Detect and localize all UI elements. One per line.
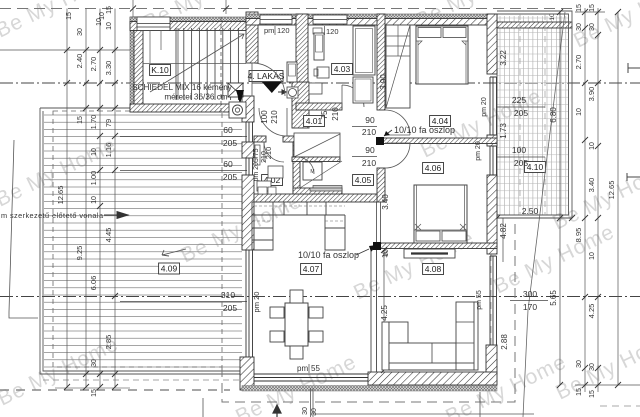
svg-text:5.65: 5.65 bbox=[549, 290, 558, 306]
svg-text:pm 20: pm 20 bbox=[481, 97, 488, 117]
svg-text:1.73: 1.73 bbox=[499, 123, 508, 139]
svg-text:pm 20: pm 20 bbox=[252, 292, 261, 313]
svg-text:30: 30 bbox=[576, 360, 583, 368]
svg-text:2.40: 2.40 bbox=[75, 54, 84, 69]
svg-text:30: 30 bbox=[589, 363, 596, 371]
svg-text:10: 10 bbox=[99, 12, 106, 20]
svg-text:30: 30 bbox=[91, 359, 98, 367]
svg-text:K.10: K.10 bbox=[151, 65, 169, 75]
svg-text:100: 100 bbox=[512, 145, 526, 155]
svg-text:210: 210 bbox=[261, 151, 268, 163]
svg-text:3.90: 3.90 bbox=[379, 74, 388, 90]
svg-text:2.85: 2.85 bbox=[104, 335, 113, 350]
svg-text:205: 205 bbox=[514, 108, 528, 118]
svg-text:10: 10 bbox=[383, 249, 390, 257]
svg-text:4.06: 4.06 bbox=[425, 163, 442, 173]
svg-text:205: 205 bbox=[514, 158, 528, 168]
svg-text:pm: pm bbox=[264, 26, 274, 35]
svg-text:pm 55: pm 55 bbox=[476, 290, 483, 310]
svg-text:205: 205 bbox=[223, 138, 237, 148]
svg-text:10: 10 bbox=[576, 108, 583, 116]
svg-text:10: 10 bbox=[589, 142, 596, 150]
svg-text:4.45: 4.45 bbox=[104, 228, 113, 243]
svg-text:90: 90 bbox=[365, 115, 375, 125]
svg-text:15: 15 bbox=[576, 4, 583, 12]
svg-text:300: 300 bbox=[523, 289, 537, 299]
svg-text:2.70: 2.70 bbox=[574, 55, 583, 70]
svg-text:210: 210 bbox=[362, 127, 376, 137]
svg-text:15: 15 bbox=[66, 12, 73, 20]
svg-text:1.16: 1.16 bbox=[104, 143, 113, 158]
svg-text:60: 60 bbox=[223, 159, 233, 169]
svg-text:205: 205 bbox=[223, 303, 237, 313]
svg-text:15: 15 bbox=[589, 390, 596, 398]
svg-text:10: 10 bbox=[91, 196, 98, 204]
svg-text:3.40: 3.40 bbox=[587, 178, 596, 193]
svg-text:3.22: 3.22 bbox=[499, 50, 508, 66]
svg-text:1.00: 1.00 bbox=[89, 171, 98, 186]
svg-text:SCHIEDEL MIX 16 kémény: SCHIEDEL MIX 16 kémény bbox=[132, 83, 233, 92]
svg-text:4.04: 4.04 bbox=[432, 116, 449, 126]
svg-text:9.25: 9.25 bbox=[75, 246, 84, 261]
svg-text:225: 225 bbox=[512, 95, 526, 105]
svg-text:170: 170 bbox=[523, 302, 537, 312]
svg-text:4.08: 4.08 bbox=[425, 264, 442, 274]
svg-text:méretei 36/36 cm: méretei 36/36 cm bbox=[164, 93, 227, 102]
svg-text:15: 15 bbox=[77, 116, 84, 124]
svg-text:55: 55 bbox=[311, 364, 320, 373]
svg-text:30: 30 bbox=[311, 408, 318, 416]
svg-text:8.95: 8.95 bbox=[574, 228, 583, 243]
svg-text:3.30: 3.30 bbox=[104, 61, 113, 76]
svg-text:10: 10 bbox=[589, 252, 596, 260]
svg-text:30: 30 bbox=[576, 23, 583, 31]
svg-text:15: 15 bbox=[576, 388, 583, 396]
svg-text:4.07: 4.07 bbox=[303, 264, 320, 274]
svg-text:4.10: 4.10 bbox=[527, 162, 544, 172]
svg-text:30: 30 bbox=[77, 28, 84, 36]
svg-text:120: 120 bbox=[326, 27, 339, 36]
svg-text:310: 310 bbox=[221, 290, 235, 300]
svg-text:30: 30 bbox=[589, 23, 596, 31]
svg-text:3.90: 3.90 bbox=[587, 87, 596, 102]
svg-text:4.82: 4.82 bbox=[499, 223, 508, 239]
svg-text:6.06: 6.06 bbox=[89, 276, 98, 291]
svg-text:12.65: 12.65 bbox=[56, 186, 65, 205]
svg-text:m szerkezetű előtető vonala: m szerkezetű előtető vonala bbox=[1, 211, 104, 220]
svg-text:12.65: 12.65 bbox=[607, 181, 616, 200]
svg-text:30: 30 bbox=[302, 407, 309, 415]
svg-text:2.88: 2.88 bbox=[500, 334, 509, 350]
svg-text:210: 210 bbox=[331, 107, 340, 121]
svg-text:210: 210 bbox=[270, 110, 279, 124]
svg-text:6.80: 6.80 bbox=[549, 107, 558, 123]
svg-text:4.25: 4.25 bbox=[587, 304, 596, 319]
svg-text:2.70: 2.70 bbox=[89, 57, 98, 72]
svg-text:75: 75 bbox=[320, 110, 329, 119]
svg-text:15: 15 bbox=[589, 4, 596, 12]
svg-text:3.40: 3.40 bbox=[381, 194, 390, 210]
svg-text:79: 79 bbox=[104, 119, 113, 127]
svg-text:205: 205 bbox=[223, 172, 237, 182]
svg-text:120: 120 bbox=[277, 26, 290, 35]
svg-text:10: 10 bbox=[106, 22, 113, 30]
svg-text:60: 60 bbox=[223, 125, 233, 135]
svg-text:4.05: 4.05 bbox=[355, 175, 372, 185]
svg-text:4.03: 4.03 bbox=[334, 64, 351, 74]
svg-text:10/10 fa oszlop: 10/10 fa oszlop bbox=[298, 250, 359, 260]
svg-text:210: 210 bbox=[362, 158, 376, 168]
svg-text:100: 100 bbox=[260, 110, 269, 124]
svg-text:4.09: 4.09 bbox=[161, 264, 178, 274]
svg-text:4. LAKÁS: 4. LAKÁS bbox=[248, 71, 285, 81]
svg-text:90: 90 bbox=[365, 145, 375, 155]
svg-text:1.70: 1.70 bbox=[89, 115, 98, 130]
svg-text:pm 20: pm 20 bbox=[475, 141, 482, 161]
svg-text:10: 10 bbox=[91, 148, 98, 156]
svg-text:pm 205/75: pm 205/75 bbox=[253, 148, 260, 181]
svg-text:4.25: 4.25 bbox=[380, 305, 389, 321]
svg-text:15: 15 bbox=[106, 6, 113, 14]
svg-text:15: 15 bbox=[91, 389, 98, 397]
svg-text:pm: pm bbox=[297, 364, 308, 373]
svg-text:2.50: 2.50 bbox=[522, 206, 539, 216]
